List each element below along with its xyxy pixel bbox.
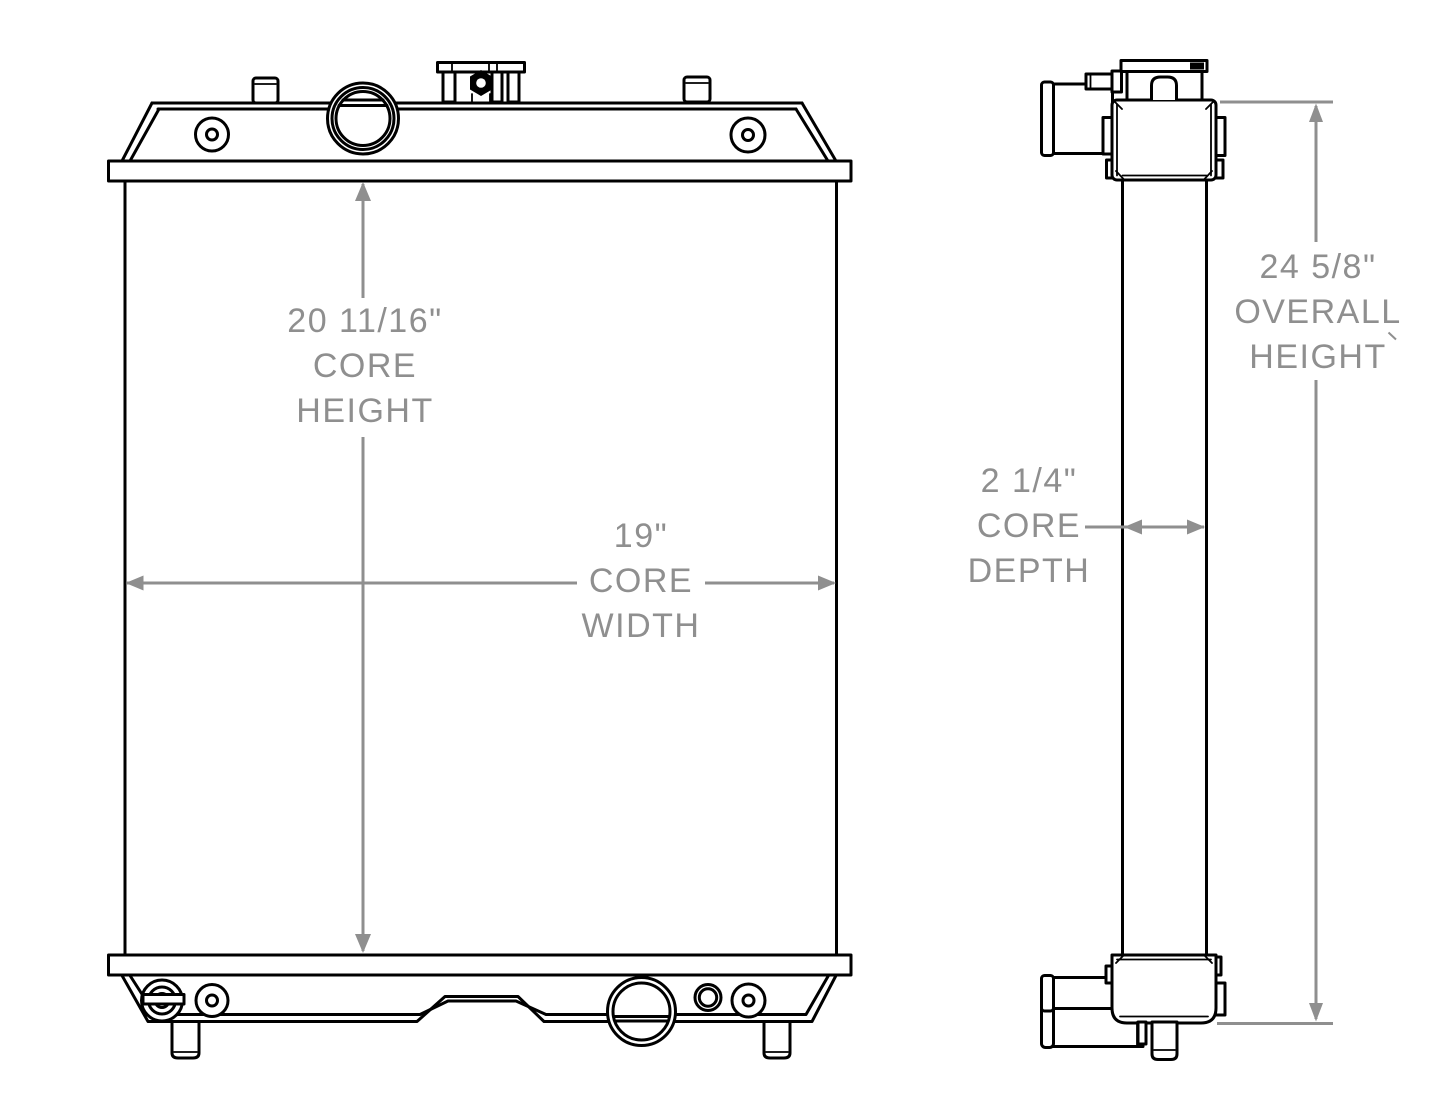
drain-petcock-wing — [143, 995, 184, 1005]
overall-height-label-line1: OVERALL — [1188, 290, 1448, 335]
core-width-label: 19" CORE WIDTH — [511, 514, 771, 649]
cap-side-tab — [1190, 63, 1204, 70]
outlet-hose-flange — [1042, 976, 1054, 1012]
core-depth-arrow-right — [1187, 520, 1205, 535]
core-height-label-line2: HEIGHT — [235, 389, 495, 434]
core-depth-label: 2 1/4" CORE DEPTH — [899, 459, 1159, 594]
filler-neck-outer-ring — [328, 83, 399, 154]
radiator-cap-front — [438, 63, 525, 103]
bottom-header-band — [109, 955, 852, 975]
drain-petcock — [142, 980, 185, 1021]
core-height-label-line1: CORE — [235, 344, 495, 389]
mounting-pin-top-right — [684, 77, 710, 102]
overall-height-arrow-up — [1309, 104, 1323, 123]
top-tank-right-slant-inner — [796, 109, 828, 161]
overall-height-label: 24 5/8" OVERALL HEIGHT — [1188, 245, 1448, 380]
cap-leg-left — [443, 72, 455, 102]
inlet-hose-flange — [1042, 82, 1054, 156]
mounting-pin-top-left — [253, 78, 278, 103]
core-width-label-line1: CORE — [511, 559, 771, 604]
overall-height-measurement: 24 5/8" — [1188, 245, 1448, 290]
side-mounting-pin — [1152, 1022, 1177, 1060]
side-bottom-tank — [1042, 955, 1226, 1060]
outlet-hose-connection — [1052, 978, 1113, 1009]
core-height-label: 20 11/16" CORE HEIGHT — [235, 299, 495, 434]
overall-height-label-line2: HEIGHT — [1188, 335, 1448, 380]
overflow-nipple-flange — [1112, 71, 1122, 92]
cap-leg-middle — [492, 72, 502, 102]
core-width-measurement: 19" — [511, 514, 771, 559]
bolt-hole-bottom-right — [732, 984, 765, 1017]
bolt-hole-top-right — [731, 118, 765, 152]
core-depth-label-line2: DEPTH — [899, 549, 1159, 594]
core-depth-label-line1: CORE — [899, 504, 1159, 549]
side-bottom-tank-box — [1112, 955, 1216, 1023]
overall-height-arrow-down — [1309, 1003, 1323, 1022]
cap-hex-nut-hole — [476, 78, 486, 88]
small-port — [695, 985, 721, 1011]
side-top-tank-box — [1112, 100, 1216, 180]
radiator-cap-side — [1121, 61, 1207, 101]
core-depth-measurement: 2 1/4" — [899, 459, 1159, 504]
outlet-port — [608, 978, 676, 1046]
bottom-tank — [122, 976, 836, 1059]
core-width-label-line2: WIDTH — [511, 604, 771, 649]
core-height-measurement: 20 11/16" — [235, 299, 495, 344]
side-top-tank — [1042, 61, 1226, 181]
filler-neck — [328, 83, 399, 154]
top-header-band — [109, 161, 852, 181]
side-drain-stub — [1138, 1022, 1146, 1044]
cap-leg-right — [508, 72, 519, 102]
top-tank-right-slant — [802, 103, 836, 161]
cap-side-dome — [1152, 77, 1177, 100]
bolt-hole-top-left — [196, 118, 229, 151]
bolt-hole-bottom-left — [196, 985, 228, 1017]
top-tank — [122, 63, 836, 162]
overall-height-dimension — [1217, 102, 1396, 1024]
radiator-technical-drawing: 20 11/16" CORE HEIGHT 19" CORE WIDTH 24 … — [0, 0, 1450, 1120]
